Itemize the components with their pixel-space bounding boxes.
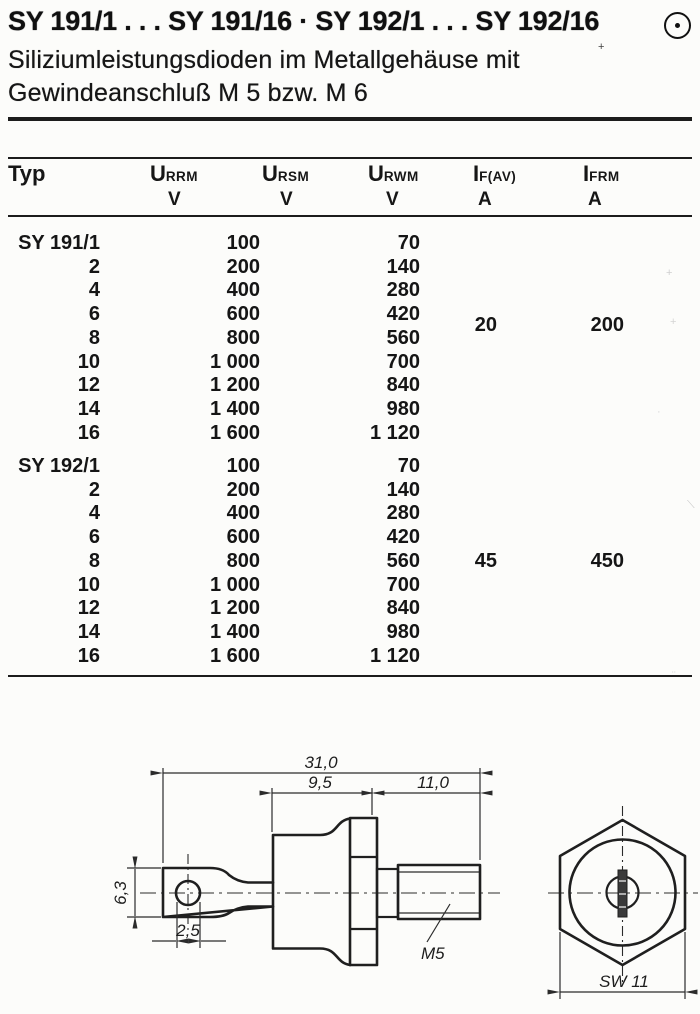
type-cell: 14 bbox=[0, 398, 100, 421]
urwm-cell: 140 bbox=[270, 479, 420, 502]
urwm-cell: 980 bbox=[270, 621, 420, 644]
table-row: 4400280 bbox=[0, 279, 660, 303]
table-row: SY 192/110070 bbox=[0, 455, 660, 479]
type-cell: 14 bbox=[0, 621, 100, 644]
header-bottom-rule bbox=[8, 215, 692, 217]
type-cell: 2 bbox=[0, 256, 100, 279]
type-cell: SY 191/1 bbox=[0, 232, 100, 255]
urwm-cell: 140 bbox=[270, 256, 420, 279]
urwm-cell: 1 120 bbox=[270, 422, 420, 445]
divider-thick bbox=[8, 117, 692, 121]
diode-body bbox=[273, 819, 350, 966]
type-cell: 16 bbox=[0, 422, 100, 445]
type-cell: 8 bbox=[0, 327, 100, 350]
dim-overall-length: 31,0 bbox=[304, 753, 338, 772]
urwm-cell: 420 bbox=[270, 526, 420, 549]
hex-flange bbox=[350, 818, 377, 965]
type-cell: 12 bbox=[0, 374, 100, 397]
subtitle-line: Siliziumleistungsdioden im Metallgehäuse… bbox=[8, 44, 520, 77]
urwm-cell: 280 bbox=[270, 279, 420, 302]
circled-dot-center bbox=[675, 23, 680, 28]
urrm-cell: 1 200 bbox=[110, 374, 260, 397]
page-subtitle: Siliziumleistungsdioden im Metallgehäuse… bbox=[8, 44, 520, 110]
table-top-rule bbox=[8, 157, 692, 159]
scan-speck: + bbox=[598, 42, 604, 53]
package-drawing: 31,0 9,5 11,0 6,3 2,5 M5 bbox=[0, 730, 700, 1014]
type-cell: 6 bbox=[0, 526, 100, 549]
urwm-cell: 700 bbox=[270, 351, 420, 374]
urrm-cell: 1 400 bbox=[110, 621, 260, 644]
urrm-cell: 1 600 bbox=[110, 422, 260, 445]
if-av-value: 45 bbox=[395, 550, 497, 573]
type-cell: 8 bbox=[0, 550, 100, 573]
table-row: 161 6001 120 bbox=[0, 645, 660, 669]
table-row: 101 000700 bbox=[0, 574, 660, 598]
table-row: 4400280 bbox=[0, 502, 660, 526]
table-row: 141 400980 bbox=[0, 398, 660, 422]
circled-dot-icon bbox=[664, 12, 691, 39]
col-header-frm: IFRMA bbox=[583, 161, 620, 211]
leader-line bbox=[427, 904, 450, 942]
table-row: 121 200840 bbox=[0, 374, 660, 398]
col-header-rrm: URRMV bbox=[150, 161, 198, 211]
table-row: 101 000700 bbox=[0, 351, 660, 375]
urrm-cell: 100 bbox=[110, 232, 260, 255]
col-header-typ: Typ bbox=[8, 161, 45, 187]
table-row: 161 6001 120 bbox=[0, 422, 660, 446]
type-cell: 10 bbox=[0, 574, 100, 597]
table-row: 121 200840 bbox=[0, 597, 660, 621]
table-row: 2200140 bbox=[0, 479, 660, 503]
ifrm-value: 450 bbox=[520, 550, 624, 573]
urwm-cell: 70 bbox=[270, 455, 420, 478]
table-row: 2200140 bbox=[0, 256, 660, 280]
urrm-cell: 1 600 bbox=[110, 645, 260, 668]
urrm-cell: 1 400 bbox=[110, 398, 260, 421]
type-cell: 2 bbox=[0, 479, 100, 502]
type-cell: SY 192/1 bbox=[0, 455, 100, 478]
table-row: SY 191/110070 bbox=[0, 232, 660, 256]
table-bottom-rule bbox=[8, 675, 692, 677]
urrm-cell: 1 000 bbox=[110, 351, 260, 374]
scan-speck: ¨ bbox=[672, 671, 676, 682]
urwm-cell: 1 120 bbox=[270, 645, 420, 668]
scan-speck: ⟍ bbox=[687, 500, 695, 511]
urrm-cell: 1 200 bbox=[110, 597, 260, 620]
urrm-cell: 400 bbox=[110, 279, 260, 302]
ifrm-value: 200 bbox=[520, 314, 624, 337]
urrm-cell: 200 bbox=[110, 479, 260, 502]
dim-hole-diameter: 2,5 bbox=[175, 921, 200, 940]
col-header-rwm: URWMV bbox=[368, 161, 419, 211]
dim-case-length: 9,5 bbox=[308, 773, 332, 792]
dim-wrench-size: SW 11 bbox=[599, 972, 649, 991]
urwm-cell: 70 bbox=[270, 232, 420, 255]
threaded-stud bbox=[398, 865, 480, 919]
urrm-cell: 200 bbox=[110, 256, 260, 279]
urrm-cell: 1 000 bbox=[110, 574, 260, 597]
datasheet-page: SY 191/1 . . . SY 191/16 · SY 192/1 . . … bbox=[0, 0, 700, 1014]
urwm-cell: 840 bbox=[270, 597, 420, 620]
type-cell: 4 bbox=[0, 279, 100, 302]
urwm-cell: 840 bbox=[270, 374, 420, 397]
thread-size-label: M5 bbox=[421, 944, 445, 963]
if-av-value: 20 bbox=[395, 314, 497, 337]
col-header-fav: IF(AV)A bbox=[473, 161, 516, 211]
type-cell: 6 bbox=[0, 303, 100, 326]
urrm-cell: 600 bbox=[110, 303, 260, 326]
type-cell: 16 bbox=[0, 645, 100, 668]
table-row: 141 400980 bbox=[0, 621, 660, 645]
scan-speck: + bbox=[670, 317, 676, 328]
table-row: 6600420 bbox=[0, 526, 660, 550]
urwm-cell: 280 bbox=[270, 502, 420, 525]
urrm-cell: 800 bbox=[110, 327, 260, 350]
col-header-rsm: URSMV bbox=[262, 161, 309, 211]
diode-side-view bbox=[163, 818, 480, 965]
type-cell: 10 bbox=[0, 351, 100, 374]
urwm-cell: 700 bbox=[270, 574, 420, 597]
subtitle-line: Gewindeanschluß M 5 bzw. M 6 bbox=[8, 77, 520, 110]
urrm-cell: 800 bbox=[110, 550, 260, 573]
type-cell: 4 bbox=[0, 502, 100, 525]
dim-lug-height: 6,3 bbox=[111, 881, 130, 905]
urrm-cell: 600 bbox=[110, 526, 260, 549]
urrm-cell: 100 bbox=[110, 455, 260, 478]
page-title: SY 191/1 . . . SY 191/16 · SY 192/1 . . … bbox=[8, 6, 599, 37]
scan-speck: + bbox=[666, 268, 672, 279]
urwm-cell: 980 bbox=[270, 398, 420, 421]
type-cell: 12 bbox=[0, 597, 100, 620]
dim-thread-length: 11,0 bbox=[417, 773, 449, 792]
scan-speck: · bbox=[657, 407, 661, 418]
urrm-cell: 400 bbox=[110, 502, 260, 525]
